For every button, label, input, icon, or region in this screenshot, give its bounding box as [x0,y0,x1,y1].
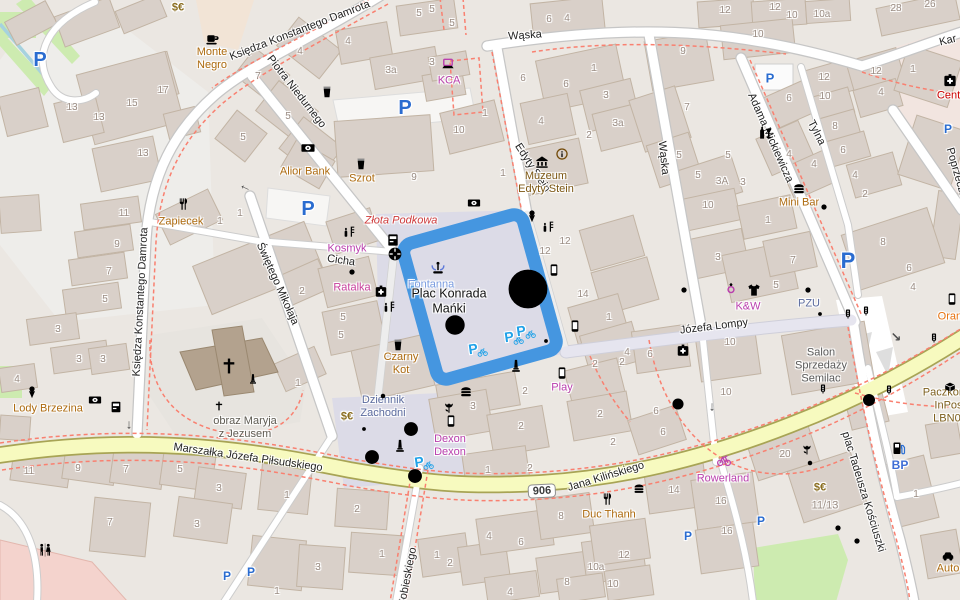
house-number: 14 [668,485,679,497]
house-number: 4 [786,149,792,161]
house-number: 5 [240,132,246,144]
tree-icon [408,469,423,484]
poi-label-szrot: Szrot [349,173,375,186]
house-number: 6 [563,79,569,91]
parking-icon: P [944,122,952,136]
house-number: 1 [500,168,506,180]
shop-dot-icon [807,460,813,466]
shop-dot-icon [821,204,828,211]
poi-label-złota-podkowa: Złota Podkowa [365,215,438,228]
fuel-icon [891,440,907,456]
poi-label-obraz-maryja-z-jezusem: obraz Maryja z Jezusem [213,415,277,441]
house-number: 1 [606,312,612,324]
house-number: 4 [486,531,492,543]
street-label-piotra-niedurnego: Piotra Niedurnego [264,53,329,131]
wayside-cross-icon [214,401,224,411]
house-number: 3 [470,401,476,413]
beer-cup-icon [320,85,334,99]
house-number: 11 [119,208,129,220]
street-label-tylna: Tylna [804,118,827,147]
street-label-plac-tadeusza-kościuszki: plac Tadeusza Kościuszki [839,430,888,553]
street-label-wąska: Wąska [655,141,671,176]
house-number: 5 [449,18,455,30]
restaurant-icon [177,197,191,211]
bicycle-shop-icon [717,453,732,468]
house-number: 17 [157,85,168,97]
house-number: 1 [274,586,280,598]
house-number: 6 [518,537,524,549]
house-number: 6 [546,14,552,26]
house-number: 3 [194,519,200,531]
currency-exchange-icon: $€ [341,411,353,424]
house-number: 10 [724,337,735,349]
clothes-shop-icon [747,283,762,298]
poi-label-play: Play [551,382,572,395]
museum-icon [535,155,550,170]
house-number: 5 [102,294,108,306]
house-number: 12 [719,5,730,17]
tree-icon [672,398,684,410]
house-number: 6 [660,427,666,439]
beer-cup-icon [354,157,368,171]
parcel-locker-icon [943,380,957,394]
currency-exchange-icon: $€ [814,482,826,495]
house-number: 7 [790,255,796,267]
house-number: 4 [297,46,303,58]
traffic-light-icon [843,309,854,320]
parking-icon: P [684,529,692,543]
pharmacy-icon [676,343,690,357]
house-number: 2 [527,463,533,475]
house-number: 5 [416,8,422,20]
street-label-kar: Kar [938,33,958,50]
house-number: 16 [715,496,726,508]
poi-label-czarny-kot: Czarny Kot [384,351,419,377]
house-number: 4 [878,87,884,99]
house-number: 3 [55,324,61,336]
road-badge-906: 906 [527,483,556,498]
office-dot-icon [805,287,812,294]
house-number: 10 [752,29,763,41]
office-dot-icon [380,393,386,399]
phone-shop-icon [444,414,458,428]
poi-label-ratalka: Ratalka [333,282,370,295]
parking-icon: P [33,49,46,73]
house-number: 3a [385,65,396,77]
house-number: 13 [93,112,104,124]
house-number: 6 [520,73,526,85]
phone-shop-icon [547,263,561,277]
traffic-light-icon [884,385,895,396]
house-number: 2 [586,130,592,142]
house-number: 2 [518,421,524,433]
coffee-icon [205,32,220,47]
oneway-arrow-icon: ← [237,176,255,195]
house-number: 4 [538,116,544,128]
bank-icon [301,141,316,156]
street-label-wąska: Wąska [508,28,542,43]
pharmacy-icon [943,73,958,88]
house-number: 8 [832,121,838,133]
vending-machine-icon [386,233,401,248]
house-number: 3 [429,57,435,69]
house-number: 1 [379,549,385,561]
house-number: 4 [811,159,817,171]
office-dot-icon [854,538,861,545]
poi-label-bp: BP [892,458,909,472]
house-number: 7 [106,266,112,278]
house-number: 10a [814,9,831,21]
house-number: 1 [591,63,597,75]
car-icon [941,549,955,563]
house-number: 10 [786,10,797,22]
house-number: 12 [539,246,550,258]
poi-label-lody-brzezina: Lody Brzezina [13,403,83,416]
house-number: 2 [522,386,528,398]
poi-label-alior-bank: Alior Bank [280,166,330,179]
house-number: 9 [75,463,81,475]
house-number: 1 [913,489,919,501]
poi-label-salon-sprzedaży-semilac: Salon Sprzedaży Semilac [795,347,847,386]
fastfood-icon [459,385,473,399]
node-dot-icon [362,427,367,432]
parking-icon: P [301,198,314,222]
house-number: 1 [482,108,488,120]
street-label-świętego-mikołaja: Świętego Mikołaja [253,241,301,327]
computer-shop-icon [441,57,456,72]
florist-icon [442,401,456,415]
hairdresser-icon [342,224,356,238]
street-label-sobieskiego: Sobieskiego [396,546,420,600]
house-number: 2 [610,437,616,449]
house-number: 14 [577,289,588,301]
bank-icon [88,393,102,407]
house-number: 8 [564,577,570,589]
phone-shop-icon [555,366,569,380]
house-number: 7 [684,102,690,114]
shop-dot-icon [835,525,842,532]
oneway-arrow-icon: ↓ [709,398,716,413]
house-number: 20 [779,449,790,461]
poi-label-centrum: Centrum [937,90,960,103]
poi-label-kosmyk: Kosmyk [327,243,366,256]
street-label-marszałka-józefa-piłsudskiego: Marszałka Józefa Piłsudskiego [173,441,324,475]
house-number: 1 [485,465,491,477]
house-number: 6 [786,93,792,105]
house-number: 3 [315,562,321,574]
house-number: 10 [702,200,713,212]
hairdresser-icon [541,219,555,233]
tree-icon [445,315,466,336]
house-number: 3A [716,176,728,188]
house-number: 28 [890,3,901,15]
house-number: 9 [680,46,686,58]
poi-label-kca: KCA [438,75,461,88]
phone-shop-icon [568,319,582,333]
house-number: 2 [862,189,868,201]
bank-icon [467,196,481,210]
icecream-icon [525,209,539,223]
oneway-arrow-icon: ↓ [126,416,133,431]
house-number: 5 [285,111,291,123]
house-number: 7 [123,464,129,476]
house-number: 6 [653,406,659,418]
house-number: 4 [852,170,858,182]
house-number: 1 [434,550,440,562]
house-number: 7 [107,517,113,529]
shop-dot-icon [349,269,356,276]
parking-icon: P [757,514,765,528]
monument-icon [393,439,408,454]
house-number: 13 [66,102,77,114]
house-number: 8 [880,237,886,249]
house-number: 2 [447,558,453,570]
crossing-icon [388,247,403,262]
poi-label-plac-konrada-mańki: Plac Konrada Mańki [411,286,486,316]
house-number: 3 [715,252,721,264]
poi-label-11-13: 11/13 [812,500,839,513]
house-number: 2 [354,504,360,516]
house-number: 2 [592,359,598,371]
poi-label-orange: Orange [938,311,960,324]
shrine-icon [247,373,259,385]
icecream-icon [25,385,39,399]
traffic-light-icon [929,333,940,344]
monument-icon [509,359,524,374]
parking-icon: P [398,97,411,121]
fastfood-icon [633,483,646,496]
house-number: 4 [507,587,513,599]
traffic-light-icon [818,384,829,395]
fountain-icon [430,260,447,277]
house-number: 11 [24,466,34,478]
house-number: 5 [773,280,779,292]
street-label-poprzeczna: Poprzeczna [943,146,960,205]
house-number: 1 [295,378,301,390]
house-number: 1 [765,215,771,227]
bicycle-parking-icon: P [413,452,434,471]
house-number: 6 [647,349,653,361]
bicycle-parking-icon: P [515,321,536,340]
fastfood-icon [792,182,806,196]
house-number: 5 [429,4,435,16]
house-number: 4 [564,13,570,25]
house-number: 2 [619,357,625,369]
parking-icon: P [841,248,856,274]
house-number: 15 [126,98,137,110]
house-number: 4 [14,374,20,386]
house-number: 5 [695,170,701,182]
hairdresser-icon [382,299,396,313]
house-number: 3 [603,90,609,102]
toilets-icon [38,543,53,558]
poi-label-mini-bar: Mini Bar [779,197,819,210]
house-number: 5 [338,330,344,342]
tree-icon [507,268,549,310]
atm-icon [109,400,123,414]
labels-layer: Księdza Konstantego DamrotaPiotra Niedur… [0,0,960,600]
poi-label-dexon-dexon: Dexon Dexon [434,433,466,459]
traffic-light-icon [861,306,872,317]
node-dot-icon [544,339,549,344]
street-label-księdza-konstantego-damrota: Księdza Konstantego Damrota [131,227,152,377]
house-number: 12 [818,72,829,84]
house-number: 5 [725,150,731,162]
house-number: 4 [910,282,916,294]
poi-label-duc-thanh: Duc Thanh [582,509,636,522]
house-number: 10 [819,91,830,103]
poi-label-auto: Auto [937,563,960,576]
house-number: 5 [177,464,183,476]
parking-icon: P [247,565,255,579]
house-number: 2 [597,409,603,421]
house-number: 9 [411,172,417,184]
poi-label-k&w: K&W [735,301,760,314]
poi-label-pzu: PZU [798,298,820,311]
house-number: 4 [345,36,351,48]
house-number: 6 [906,263,912,275]
drink-cup-icon [391,338,405,352]
poi-label-muzeum-edyty-stein: Muzeum Edyty Stein [518,170,574,196]
node-dot-icon [818,312,823,317]
house-number: 1 [910,64,916,76]
house-number: 12 [870,66,881,78]
house-number: 1 [237,208,243,220]
house-number: 10 [607,579,618,591]
pharmacy-icon [374,284,388,298]
house-number: 5 [340,312,346,324]
parking-icon: P [766,70,775,85]
phone-shop-icon [945,292,959,306]
house-number: 3 [216,483,222,495]
poi-label-monte-negro: Monte Negro [197,46,228,72]
shop-dot-icon [681,287,688,294]
map-canvas[interactable]: Księdza Konstantego DamrotaPiotra Niedur… [0,0,960,600]
tree-icon [863,394,876,407]
restaurant-icon [601,492,615,506]
currency-exchange-icon: $€ [172,2,184,15]
house-number: 12 [618,550,629,562]
poi-label-rowerland: Rowerland [697,473,750,486]
bar-icon [758,126,773,141]
house-number: 12 [769,2,780,14]
house-number: 3 [100,354,106,366]
tree-icon [404,422,419,437]
house-number: 7 [255,71,261,83]
oneway-arrow-icon: ↘ [891,329,902,344]
house-number: 12 [559,236,570,248]
bicycle-parking-icon: P [467,339,488,358]
house-number: 6 [840,145,846,157]
house-number: 1 [284,490,290,502]
house-number: 10a [588,562,605,574]
house-number: 3 [76,354,82,366]
house-number: 26 [924,0,935,11]
house-number: 8 [558,511,564,523]
church-cross-icon [221,358,238,375]
parking-icon: P [223,569,231,583]
house-number: 3 [740,177,746,189]
house-number: 1 [217,216,223,228]
jewelry-icon [725,282,738,295]
house-number: 3a [612,118,623,130]
house-number: 13 [137,148,148,160]
poi-label-zapiecek: Zapiecek [159,216,204,229]
house-number: 5 [676,150,682,162]
house-number: 16 [721,526,732,538]
info-icon [556,148,569,161]
tree-icon [365,450,380,465]
florist-icon [801,444,814,457]
street-label-józefa-lompy: Józefa Lompy [679,316,749,337]
house-number: 9 [114,239,120,251]
house-number: 10 [720,387,731,399]
house-number: 2 [299,286,305,298]
house-number: 10 [453,125,464,137]
